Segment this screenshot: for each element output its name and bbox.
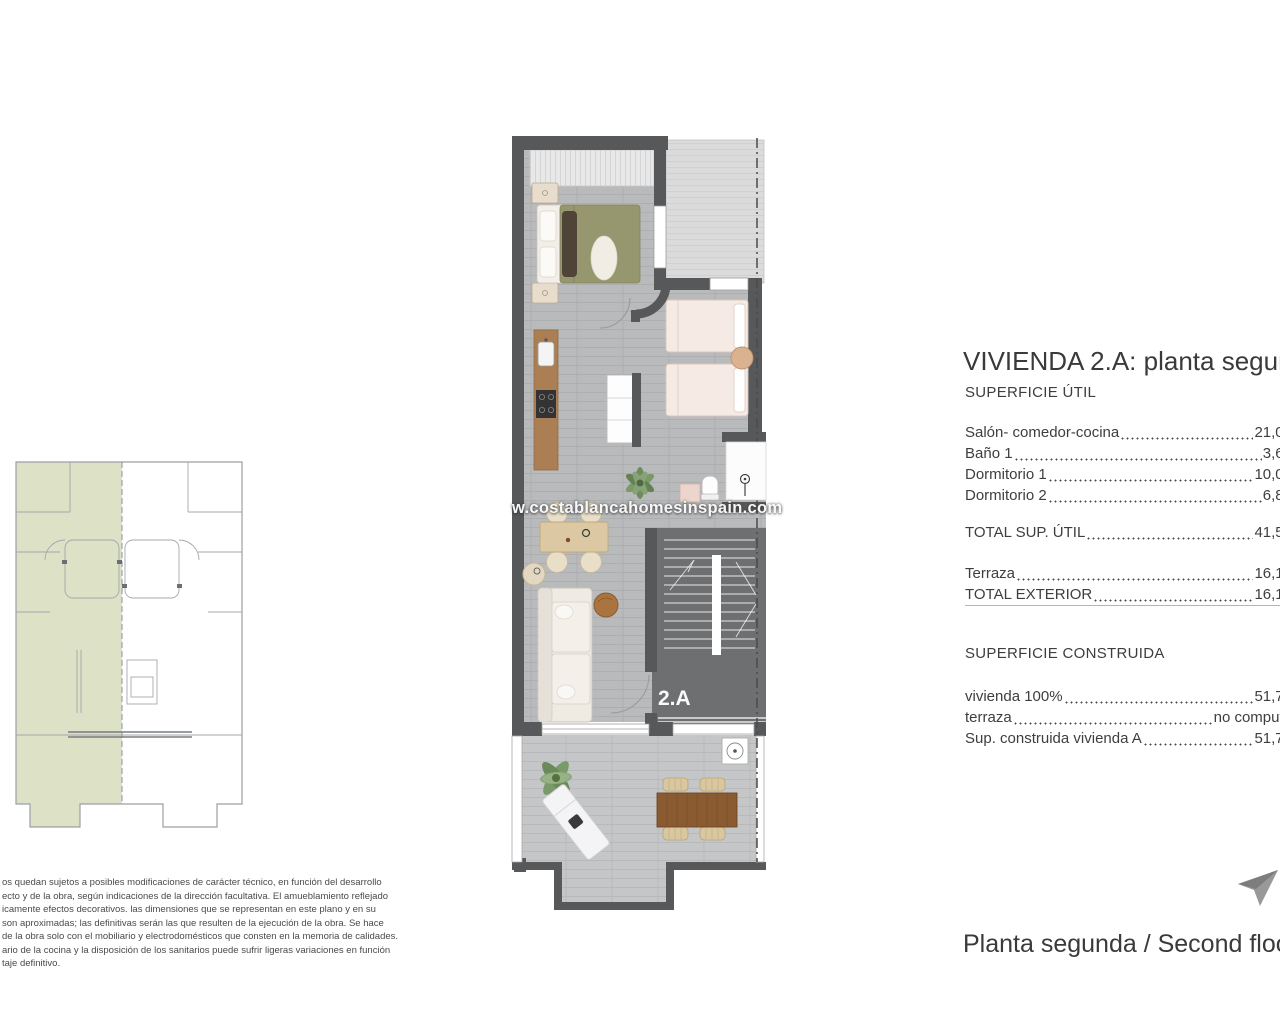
dining-chair — [547, 552, 568, 573]
row-value: 16,17 — [1254, 565, 1280, 582]
row-label: Terraza — [965, 565, 1015, 582]
kitchen-partition-wall — [632, 373, 641, 447]
window-bedroom2 — [710, 278, 748, 290]
row-label: Salón- comedor-cocina — [965, 424, 1119, 441]
disclaimer-line: icamente efectos decorativos. las dimens… — [2, 903, 472, 917]
sofa-pillow — [555, 605, 573, 619]
row-label: TOTAL EXTERIOR — [965, 586, 1092, 603]
kitchen-stove — [536, 390, 556, 418]
unit-label: 2.A — [658, 687, 691, 710]
exterior-rows: Terraza 16,17 TOTAL EXTERIOR 16,17 — [965, 561, 1280, 606]
leader-dots — [1048, 490, 1262, 504]
sofa-pillow — [557, 685, 575, 699]
disclaimer-line: ecto y de la obra, según indicaciones de… — [2, 890, 472, 904]
util-rows: Salón- comedor-cocina 21,06 Baño 1 3,61 … — [965, 420, 1280, 504]
table-row: Baño 1 3,61 — [965, 441, 1280, 462]
disclaimer-line: taje definitivo. — [2, 957, 472, 971]
disclaimer-line: de la obra solo con el mobiliario y elec… — [2, 930, 472, 944]
stair-stringer — [712, 555, 721, 655]
table-row: Sup. construida vivienda A 51,74 — [965, 726, 1280, 747]
page-title: VIVIENDA 2.A: planta segunda — [963, 346, 1280, 377]
row-value: 41,52 — [1254, 524, 1280, 541]
logo-arrow-icon — [1236, 868, 1280, 908]
row-label: terraza — [965, 709, 1012, 726]
nightstand — [532, 283, 558, 303]
wall-top — [512, 136, 668, 150]
row-value: 21,06 — [1254, 424, 1280, 441]
row-value: 51,74 — [1254, 730, 1280, 747]
row-label: TOTAL SUP. ÚTIL — [965, 524, 1085, 541]
dining-table — [540, 522, 608, 552]
stairwell: 2.A — [652, 528, 766, 734]
section-heading-construida: SUPERFICIE CONSTRUIDA — [965, 645, 1165, 662]
row-label: vivienda 100% — [965, 688, 1063, 705]
row-value: 51,74 — [1254, 688, 1280, 705]
bed-dark-pillow — [562, 211, 577, 277]
watermark: w.costablancahomesinspain.com — [512, 499, 782, 518]
leader-dots — [1064, 691, 1254, 705]
key-plan — [10, 452, 248, 870]
table-row: terraza no computa — [965, 705, 1280, 726]
window-stair — [673, 724, 754, 734]
leader-dots — [1086, 527, 1253, 541]
table-row: Dormitorio 2 6,84 — [965, 483, 1280, 504]
main-floorplan: 2.A — [508, 132, 778, 912]
row-label: Dormitorio 2 — [965, 487, 1047, 504]
balustrade-left — [512, 736, 522, 862]
leader-dots — [1093, 589, 1253, 603]
bed-pillow — [540, 247, 556, 277]
table-row: TOTAL EXTERIOR 16,17 — [965, 582, 1280, 603]
window-bedroom1 — [654, 206, 666, 268]
wicker-chair — [663, 827, 688, 840]
bed-pillow — [734, 368, 745, 412]
terrace-fixture — [722, 738, 748, 764]
leader-dots — [1048, 469, 1254, 483]
kitchen-sink — [538, 342, 554, 366]
row-value: no computa — [1214, 709, 1280, 726]
disclaimer-text: os quedan sujetos a posibles modificacio… — [2, 876, 472, 971]
util-total-row: TOTAL SUP. ÚTIL 41,52 — [965, 520, 1280, 541]
wall-left — [512, 136, 524, 724]
kitchen-cabinet — [607, 375, 633, 443]
leader-dots — [1013, 712, 1213, 726]
table-row: Terraza 16,17 — [965, 561, 1280, 582]
neighbor-area — [666, 140, 764, 283]
leader-dots — [1014, 448, 1262, 462]
bed-pillow — [540, 211, 556, 241]
table-row: vivienda 100% 51,74 — [965, 684, 1280, 705]
row-value: 3,61 — [1263, 445, 1280, 462]
row-label: Dormitorio 1 — [965, 466, 1047, 483]
table-row: Salón- comedor-cocina 21,06 — [965, 420, 1280, 441]
table-row: TOTAL SUP. ÚTIL 41,52 — [965, 520, 1280, 541]
round-stool — [731, 347, 753, 369]
side-table — [523, 563, 545, 585]
disclaimer-line: son aproximadas; las definitivas serán l… — [2, 917, 472, 931]
bed-pillow — [734, 304, 745, 348]
wicker-chair — [700, 778, 725, 791]
wall-curved-cap — [631, 310, 640, 322]
section-heading-util: SUPERFICIE ÚTIL — [965, 384, 1096, 401]
row-label: Baño 1 — [965, 445, 1013, 462]
leader-dots — [1016, 568, 1253, 582]
row-value: 16,17 — [1254, 586, 1280, 603]
dining-chair — [581, 552, 602, 573]
disclaimer-line: os quedan sujetos a posibles modificacio… — [2, 876, 472, 890]
coffee-table — [594, 593, 618, 617]
row-value: 10,01 — [1254, 466, 1280, 483]
leader-dots — [1120, 427, 1253, 441]
wardrobe-hatch — [530, 150, 654, 186]
floor-caption: Planta segunda / Second floor — [963, 930, 1280, 959]
table-row: Dormitorio 1 10,01 — [965, 462, 1280, 483]
nightstand — [532, 183, 558, 203]
disclaimer-line: ario de la cocina y la disposición de lo… — [2, 944, 472, 958]
floor-terrace-notch — [556, 867, 672, 907]
row-label: Sup. construida vivienda A — [965, 730, 1142, 747]
floorplan-page: 2.A — [0, 0, 1280, 1024]
key-plan-highlight — [16, 462, 122, 827]
bed-throw — [591, 236, 617, 280]
shower-floor — [726, 442, 766, 500]
wicker-chair — [700, 827, 725, 840]
leader-dots — [1143, 733, 1254, 747]
wicker-chair — [663, 778, 688, 791]
row-value: 6,84 — [1263, 487, 1280, 504]
construida-rows: vivienda 100% 51,74 terraza no computa S… — [965, 684, 1280, 747]
